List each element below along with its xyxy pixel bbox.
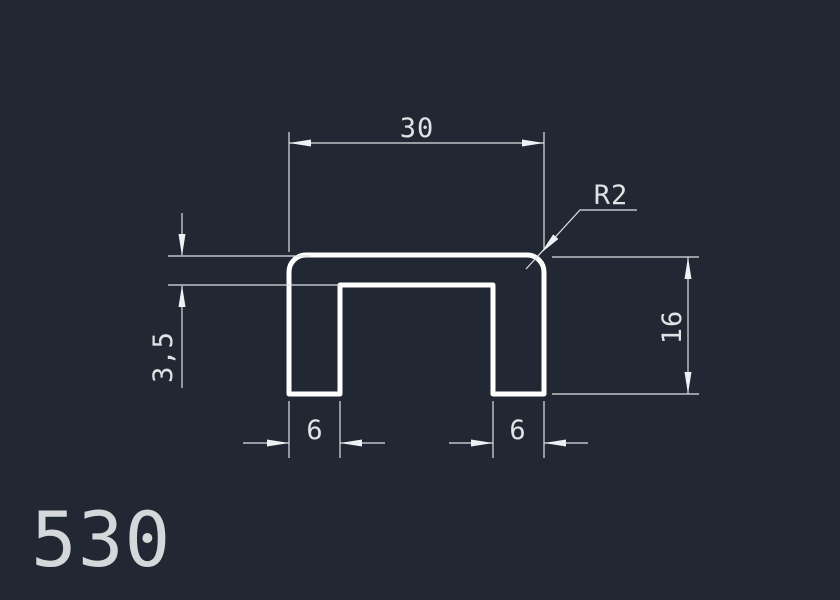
cad-drawing-canvas: 30 R2 3,5 16	[0, 0, 840, 600]
dim-width-arrow-right	[522, 140, 544, 147]
profile-u-channel	[289, 255, 544, 394]
dim-lflange-arrow-left	[340, 440, 362, 447]
dim-height-arrow-down	[685, 372, 692, 394]
dim-corner-radius: R2	[526, 180, 637, 269]
dim-wall-thickness: 3,5	[148, 213, 340, 388]
dim-lflange-value: 6	[306, 415, 323, 446]
part-number-label: 530	[31, 495, 171, 584]
dim-rflange-arrow-right	[471, 440, 493, 447]
dim-left-flange: 6	[243, 401, 385, 458]
profile-outline	[289, 255, 544, 394]
dim-radius-leader	[526, 210, 637, 269]
dim-width-arrow-left	[289, 140, 311, 147]
technical-drawing: 30 R2 3,5 16	[0, 0, 840, 600]
dim-thickness-value: 3,5	[148, 331, 179, 383]
dim-thickness-arrow-up	[179, 285, 186, 307]
dim-rflange-value: 6	[509, 415, 526, 446]
dim-radius-value: R2	[594, 180, 629, 211]
dim-height-arrow-up	[685, 257, 692, 279]
dim-lflange-arrow-right	[267, 440, 289, 447]
dim-thickness-arrow-down	[179, 234, 186, 256]
dim-width-value: 30	[400, 113, 435, 144]
dim-height-value: 16	[657, 310, 688, 345]
dim-height: 16	[552, 257, 699, 394]
dim-right-flange: 6	[449, 401, 588, 458]
dim-overall-width: 30	[289, 113, 544, 252]
dim-rflange-arrow-left	[544, 440, 566, 447]
